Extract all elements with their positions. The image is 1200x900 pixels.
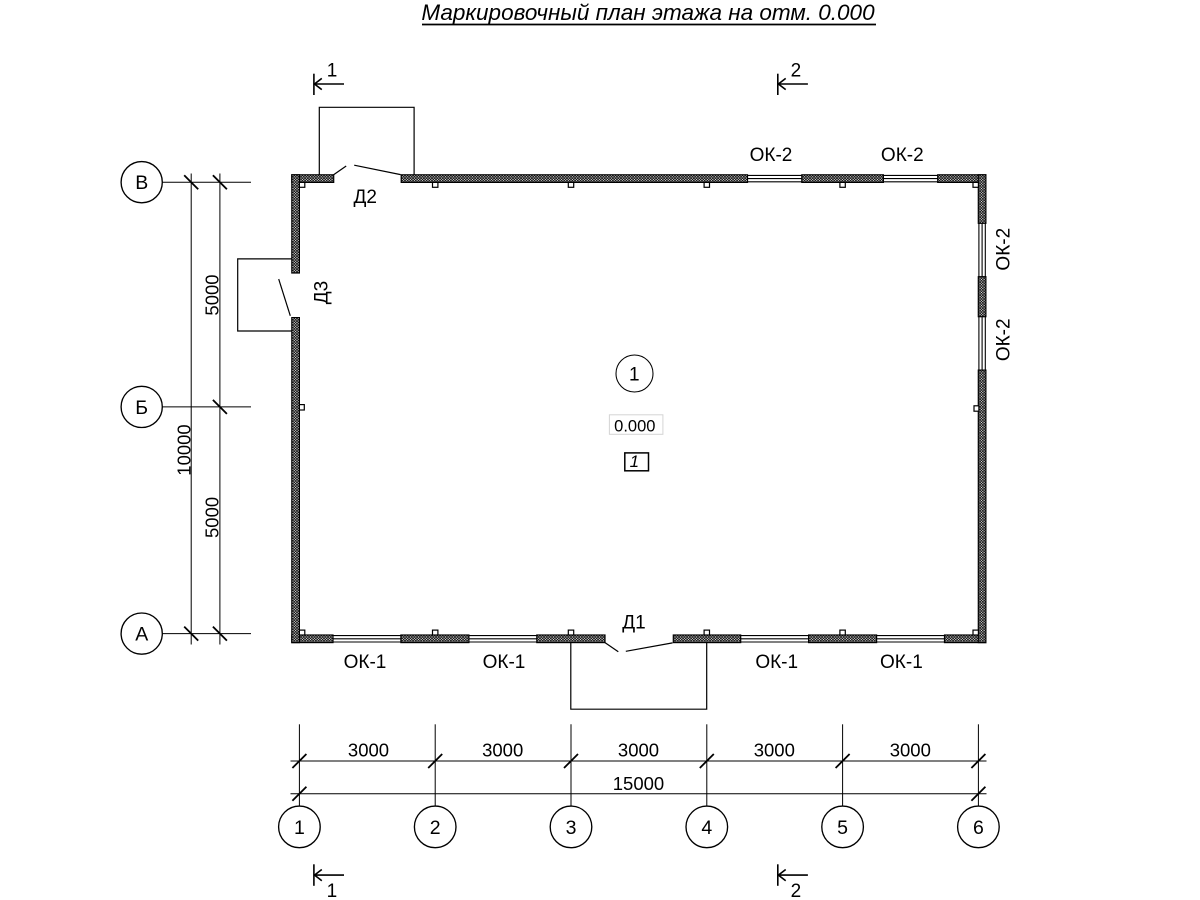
- svg-text:5000: 5000: [202, 497, 223, 538]
- svg-text:5000: 5000: [202, 274, 223, 315]
- svg-text:0.000: 0.000: [614, 417, 655, 435]
- svg-text:ОК-1: ОК-1: [483, 652, 526, 673]
- svg-text:Д1: Д1: [622, 613, 645, 634]
- svg-text:3: 3: [566, 817, 577, 839]
- svg-text:ОК-2: ОК-2: [994, 318, 1015, 361]
- svg-text:10000: 10000: [173, 424, 194, 475]
- svg-text:ОК-1: ОК-1: [880, 652, 923, 673]
- svg-text:3000: 3000: [482, 740, 523, 761]
- svg-text:15000: 15000: [613, 773, 664, 794]
- svg-text:ОК-1: ОК-1: [755, 652, 798, 673]
- svg-text:3000: 3000: [890, 740, 931, 761]
- svg-text:ОК-2: ОК-2: [994, 228, 1015, 271]
- svg-text:3000: 3000: [618, 740, 659, 761]
- svg-text:1: 1: [327, 61, 338, 82]
- svg-text:4: 4: [701, 817, 712, 839]
- svg-text:6: 6: [973, 817, 984, 839]
- svg-text:Д3: Д3: [312, 281, 333, 304]
- svg-text:ОК-2: ОК-2: [750, 145, 793, 166]
- svg-text:5: 5: [837, 817, 848, 839]
- svg-text:ОК-2: ОК-2: [881, 145, 924, 166]
- svg-text:ОК-1: ОК-1: [344, 652, 387, 673]
- svg-text:Д2: Д2: [353, 187, 376, 208]
- svg-text:2: 2: [791, 881, 802, 900]
- svg-text:1: 1: [327, 881, 338, 900]
- svg-text:3000: 3000: [754, 740, 795, 761]
- svg-text:1: 1: [630, 452, 639, 471]
- svg-text:1: 1: [294, 817, 305, 839]
- svg-text:А: А: [135, 624, 148, 646]
- svg-text:Маркировочный план этажа на от: Маркировочный план этажа на отм. 0.000: [421, 0, 875, 25]
- svg-text:В: В: [135, 172, 148, 194]
- svg-text:1: 1: [629, 365, 640, 386]
- svg-text:3000: 3000: [348, 740, 389, 761]
- svg-text:Б: Б: [135, 397, 148, 419]
- svg-text:2: 2: [430, 817, 441, 839]
- svg-text:2: 2: [791, 61, 802, 82]
